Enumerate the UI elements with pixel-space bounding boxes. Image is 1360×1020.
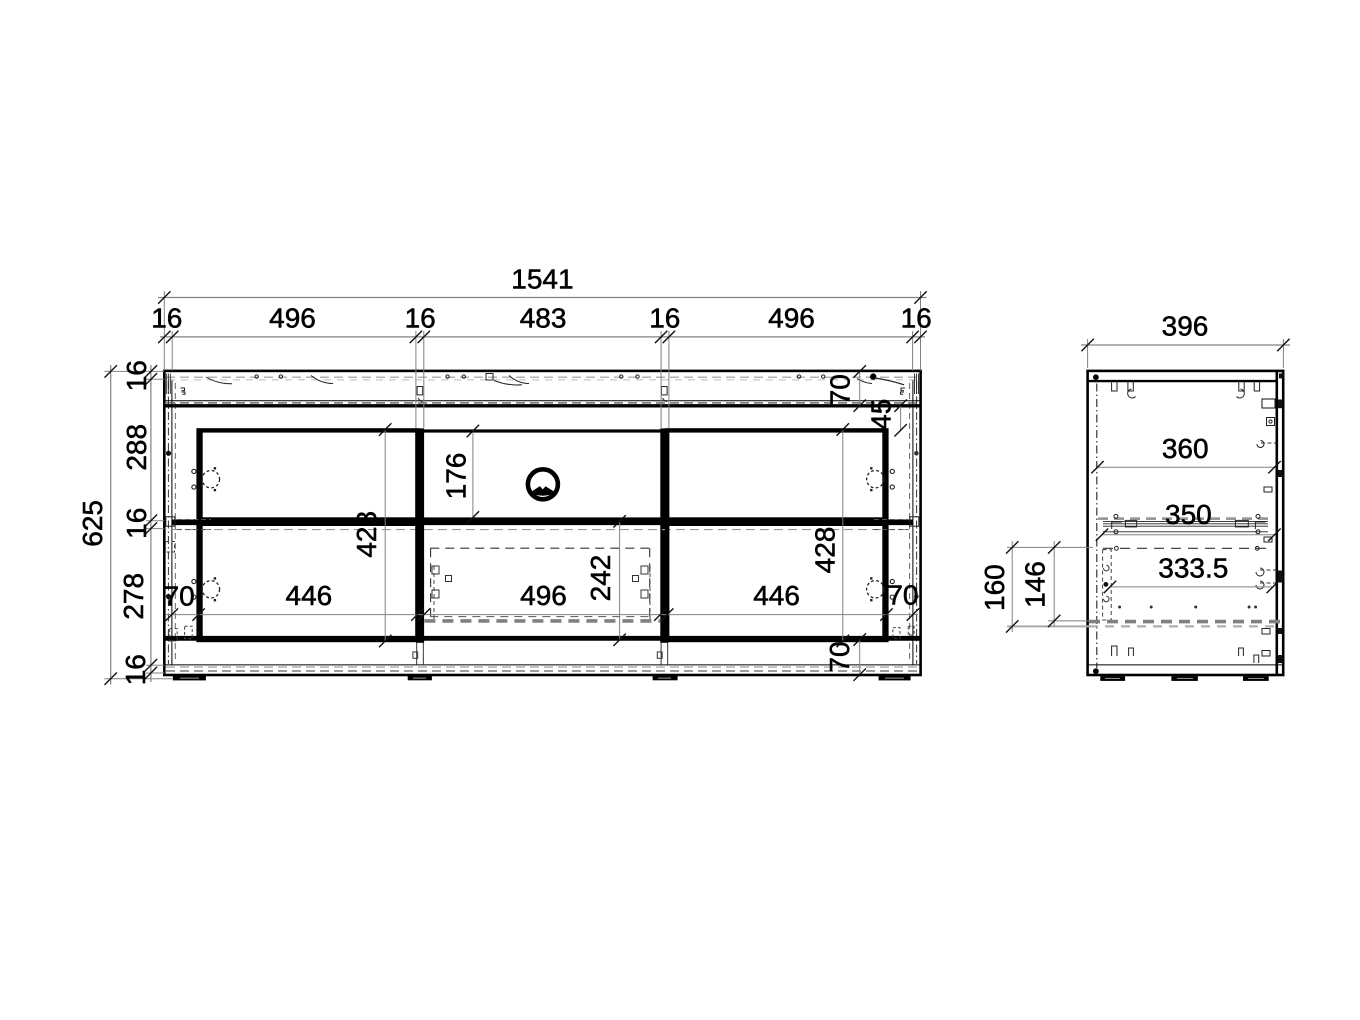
svg-text:333.5: 333.5 <box>1158 552 1228 583</box>
svg-text:16: 16 <box>121 360 152 391</box>
svg-text:16: 16 <box>649 303 680 334</box>
svg-text:428: 428 <box>351 511 382 558</box>
svg-text:1541: 1541 <box>511 263 573 294</box>
svg-text:70: 70 <box>824 641 855 672</box>
svg-text:446: 446 <box>753 580 800 611</box>
svg-text:278: 278 <box>118 573 149 620</box>
svg-text:45: 45 <box>866 399 897 430</box>
svg-text:428: 428 <box>809 527 840 574</box>
svg-text:496: 496 <box>520 580 567 611</box>
svg-text:176: 176 <box>441 453 472 500</box>
svg-text:160: 160 <box>979 564 1010 611</box>
svg-text:625: 625 <box>77 500 108 547</box>
svg-text:242: 242 <box>585 555 616 602</box>
svg-text:16: 16 <box>120 654 151 685</box>
svg-text:146: 146 <box>1019 561 1050 608</box>
svg-text:70: 70 <box>164 581 195 612</box>
svg-text:483: 483 <box>520 303 567 334</box>
svg-text:446: 446 <box>286 580 333 611</box>
svg-text:496: 496 <box>768 303 815 334</box>
svg-text:350: 350 <box>1165 499 1212 530</box>
svg-text:70: 70 <box>824 374 855 405</box>
svg-text:496: 496 <box>269 303 316 334</box>
svg-text:70: 70 <box>887 579 918 610</box>
svg-text:16: 16 <box>405 303 436 334</box>
svg-text:16: 16 <box>151 303 182 334</box>
svg-text:16: 16 <box>121 508 152 539</box>
svg-text:396: 396 <box>1162 311 1209 342</box>
svg-text:16: 16 <box>901 303 932 334</box>
svg-text:288: 288 <box>121 424 152 471</box>
svg-text:360: 360 <box>1162 433 1209 464</box>
